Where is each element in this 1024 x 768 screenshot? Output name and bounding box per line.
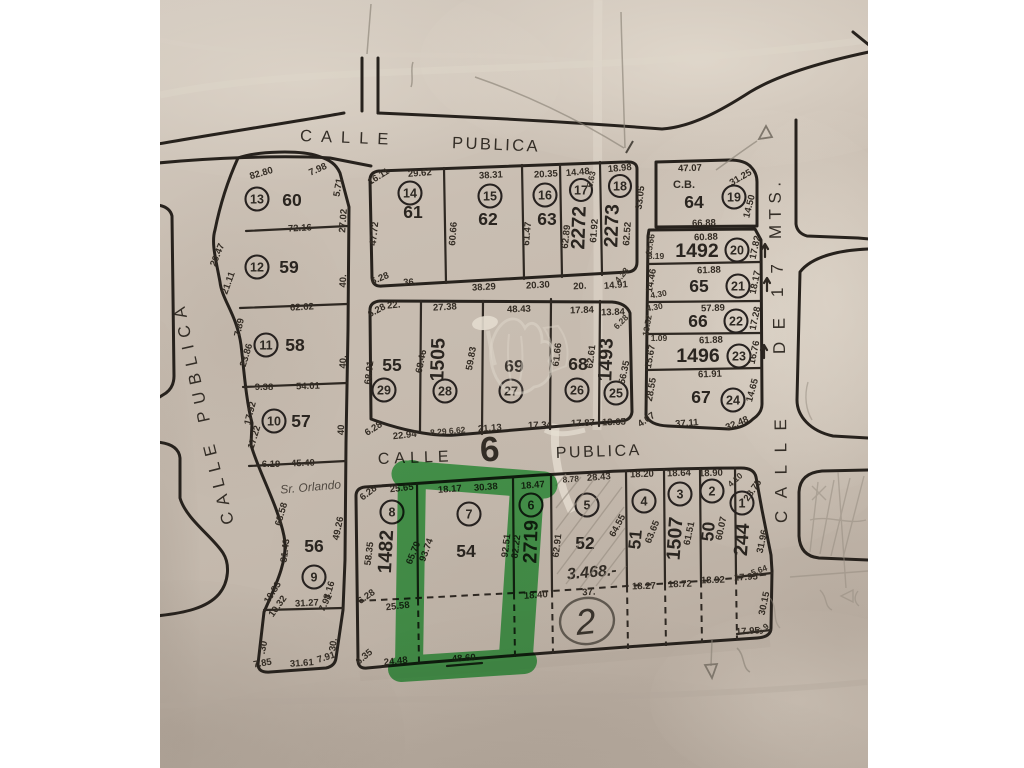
svg-text:14: 14 [403, 187, 417, 201]
svg-text:61.91: 61.91 [698, 369, 723, 381]
svg-text:18.98: 18.98 [607, 162, 632, 175]
svg-text:37.: 37. [582, 587, 596, 599]
svg-text:26: 26 [570, 384, 584, 398]
svg-text:61.88: 61.88 [697, 265, 721, 277]
svg-text:61.92: 61.92 [588, 219, 601, 243]
svg-text:17.87: 17.87 [571, 418, 595, 430]
svg-text:18.20: 18.20 [630, 469, 654, 481]
svg-text:67: 67 [691, 387, 710, 407]
svg-text:62.52: 62.52 [621, 222, 634, 246]
svg-text:18.64: 18.64 [667, 468, 692, 480]
svg-text:72.16: 72.16 [288, 222, 312, 234]
svg-text:C.B.: C.B. [673, 179, 695, 191]
svg-text:10: 10 [267, 415, 281, 429]
svg-text:1482: 1482 [374, 529, 398, 574]
svg-text:18.90: 18.90 [699, 468, 723, 480]
svg-text:PUBLICA: PUBLICA [556, 442, 643, 462]
svg-text:MTS.: MTS. [765, 176, 785, 239]
svg-text:18.92: 18.92 [701, 575, 725, 587]
svg-text:59: 59 [279, 257, 299, 277]
svg-text:17: 17 [768, 250, 787, 297]
svg-text:3: 3 [677, 488, 684, 502]
svg-text:9.38: 9.38 [255, 382, 274, 393]
svg-text:11: 11 [259, 339, 272, 353]
svg-text:20.30: 20.30 [526, 279, 550, 291]
svg-text:36.: 36. [403, 277, 417, 289]
svg-text:54.01: 54.01 [296, 381, 321, 393]
svg-text:65: 65 [689, 276, 709, 296]
svg-text:45.40: 45.40 [291, 458, 315, 470]
svg-text:23: 23 [732, 350, 746, 364]
svg-text:6.19: 6.19 [262, 459, 281, 470]
svg-text:1: 1 [739, 497, 746, 511]
svg-text:1496: 1496 [676, 345, 720, 367]
svg-text:27.38: 27.38 [433, 301, 457, 313]
svg-text:1493: 1493 [594, 338, 618, 382]
svg-text:8: 8 [389, 506, 396, 520]
svg-text:63: 63 [537, 209, 557, 229]
svg-text:8.19: 8.19 [648, 251, 665, 261]
svg-text:21.13: 21.13 [478, 422, 502, 435]
svg-text:1.09: 1.09 [651, 333, 668, 343]
svg-text:57: 57 [291, 411, 310, 431]
svg-text:2: 2 [573, 600, 598, 643]
svg-text:29.62: 29.62 [408, 167, 432, 180]
svg-text:16: 16 [538, 189, 552, 203]
svg-text:55: 55 [382, 355, 402, 375]
svg-text:40.: 40. [338, 355, 349, 369]
svg-text:20.: 20. [573, 281, 587, 293]
svg-text:27.02: 27.02 [337, 209, 350, 233]
svg-text:20.35: 20.35 [534, 168, 559, 180]
svg-text:29: 29 [377, 384, 391, 398]
svg-text:48.43: 48.43 [507, 304, 531, 316]
svg-text:19: 19 [727, 191, 741, 205]
svg-text:CALLE: CALLE [771, 407, 791, 524]
svg-text:62.62: 62.62 [290, 301, 314, 313]
svg-text:1492: 1492 [675, 240, 719, 262]
svg-text:21: 21 [731, 280, 745, 294]
svg-text:38.29: 38.29 [472, 281, 496, 293]
svg-text:58: 58 [285, 335, 305, 355]
svg-text:28.43: 28.43 [587, 471, 611, 484]
svg-text:64: 64 [684, 192, 704, 212]
svg-text:38.31: 38.31 [479, 169, 504, 181]
svg-text:37.11: 37.11 [675, 417, 700, 430]
svg-text:31.61: 31.61 [290, 657, 315, 670]
svg-text:62: 62 [478, 209, 498, 229]
svg-text:2: 2 [709, 485, 716, 499]
svg-text:1505: 1505 [426, 338, 450, 382]
svg-text:18.27: 18.27 [632, 581, 656, 593]
svg-text:13: 13 [250, 193, 264, 207]
svg-text:54: 54 [456, 541, 476, 561]
svg-text:22.: 22. [387, 299, 401, 311]
svg-text:40: 40 [336, 424, 347, 435]
svg-text:47.07: 47.07 [678, 163, 702, 175]
svg-text:13.65: 13.65 [602, 417, 627, 429]
svg-text:61: 61 [403, 202, 423, 222]
svg-text:31.27: 31.27 [295, 597, 319, 609]
svg-text:9: 9 [311, 571, 318, 585]
svg-text:15: 15 [483, 190, 497, 204]
svg-text:2273: 2273 [600, 204, 624, 248]
svg-text:4: 4 [641, 495, 648, 509]
svg-text:61.47: 61.47 [521, 221, 534, 246]
svg-text:66: 66 [688, 311, 708, 331]
svg-text:12: 12 [250, 261, 264, 275]
svg-text:7: 7 [466, 508, 473, 522]
svg-text:56: 56 [304, 536, 324, 556]
svg-text:244: 244 [730, 522, 754, 556]
svg-text:24: 24 [726, 394, 740, 408]
svg-text:17.84: 17.84 [570, 305, 595, 317]
svg-text:22: 22 [729, 315, 743, 329]
svg-text:25: 25 [609, 387, 623, 401]
svg-text:28: 28 [438, 385, 452, 399]
svg-text:18: 18 [613, 180, 627, 194]
svg-text:60: 60 [282, 190, 302, 210]
svg-text:17.34: 17.34 [528, 420, 553, 432]
svg-text:66.88: 66.88 [692, 218, 716, 230]
svg-text:60.66: 60.66 [447, 222, 460, 246]
svg-text:18.72: 18.72 [668, 579, 692, 591]
svg-text:DE: DE [770, 305, 789, 354]
svg-text:40.: 40. [338, 274, 349, 288]
svg-text:51: 51 [624, 529, 646, 550]
svg-text:30.: 30. [327, 637, 340, 651]
svg-text:20: 20 [730, 244, 744, 258]
svg-text:6: 6 [479, 430, 501, 470]
svg-text:PUBLICA: PUBLICA [452, 134, 541, 156]
